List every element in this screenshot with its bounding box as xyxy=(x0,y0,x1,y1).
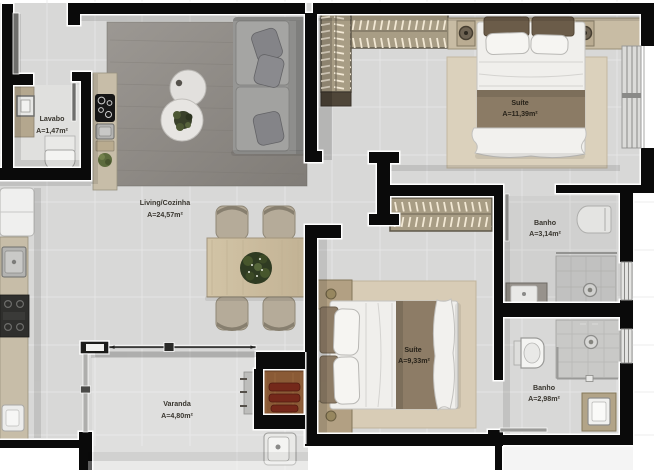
svg-text:Varanda: Varanda xyxy=(163,400,191,408)
svg-text:A=9,33m²: A=9,33m² xyxy=(398,357,430,365)
svg-text:A=11,39m²: A=11,39m² xyxy=(502,110,538,118)
svg-text:Suíte: Suíte xyxy=(404,346,421,354)
svg-text:A=2,98m²: A=2,98m² xyxy=(528,395,560,403)
svg-text:Living/Cozinha: Living/Cozinha xyxy=(140,199,190,207)
svg-text:A=1,47m²: A=1,47m² xyxy=(36,127,68,135)
svg-text:A=3,14m²: A=3,14m² xyxy=(529,230,561,238)
svg-text:A=4,80m²: A=4,80m² xyxy=(161,412,193,420)
svg-text:Suíte: Suíte xyxy=(511,99,528,107)
svg-text:Lavabo: Lavabo xyxy=(40,115,66,123)
svg-text:Banho: Banho xyxy=(533,384,556,392)
svg-text:A=24,57m²: A=24,57m² xyxy=(147,211,183,219)
svg-text:Banho: Banho xyxy=(534,219,557,227)
